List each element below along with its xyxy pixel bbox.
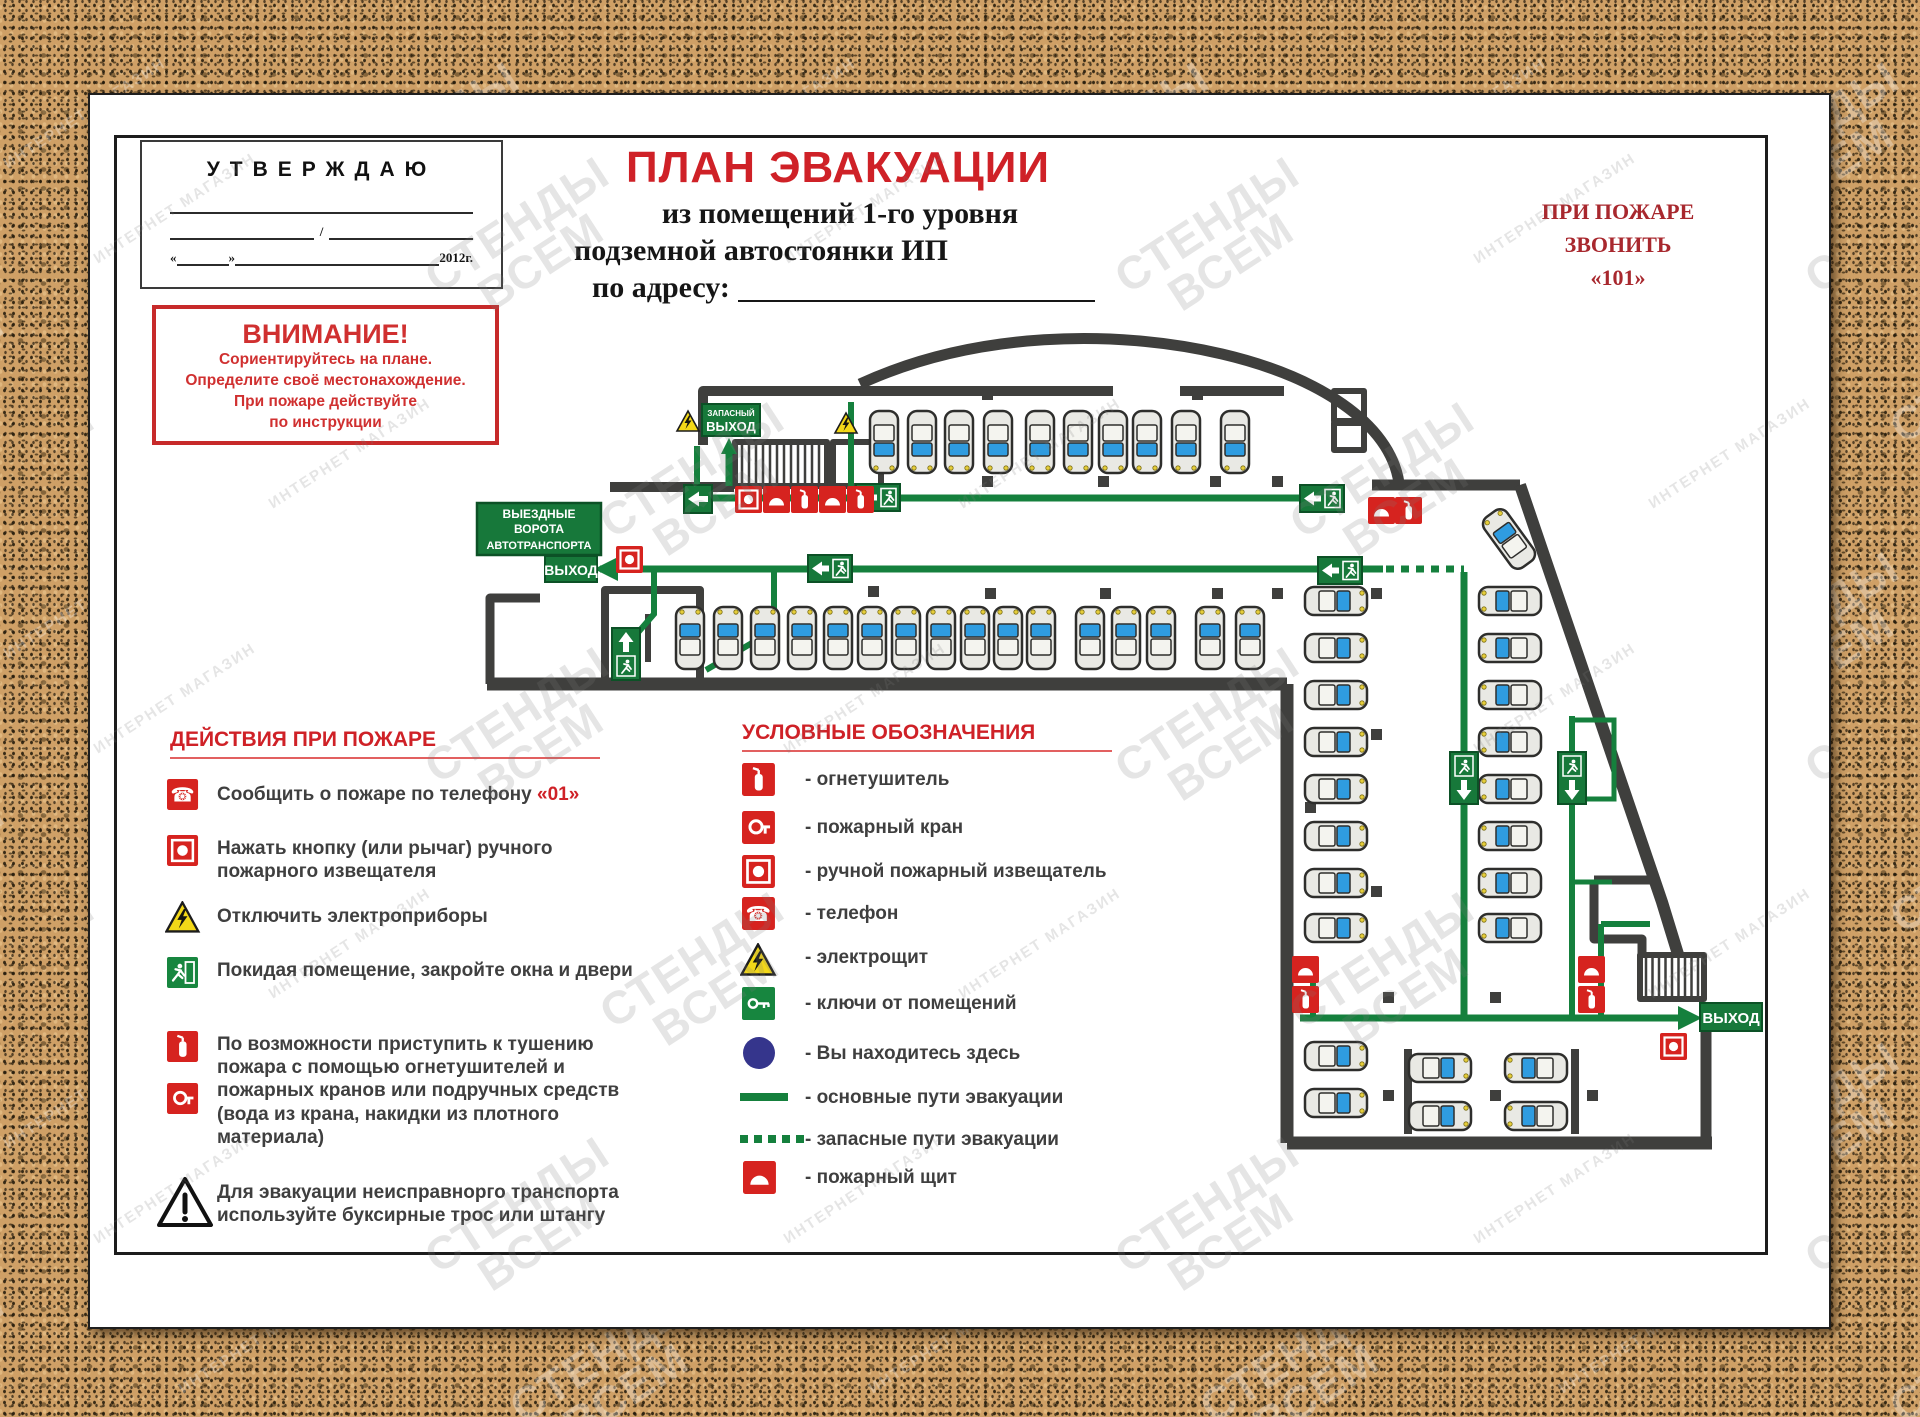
watermark-tile: СТЕНДЫВСЕМ xyxy=(0,1280,35,1417)
attention-line: При пожаре действуйте xyxy=(156,392,495,413)
svg-text:ВОРОТА: ВОРОТА xyxy=(514,522,564,536)
actions-title: ДЕЙСТВИЯ ПРИ ПОЖАРЕ xyxy=(170,728,436,752)
year-label: 2012г. xyxy=(439,250,473,266)
phone-icon xyxy=(167,779,199,811)
exit-sign-right: ВЫХОД xyxy=(1700,1003,1762,1031)
fire-call-line2: ЗВОНИТЬ xyxy=(1498,228,1738,261)
watermark-tile: СТЕНДЫВСЕМ xyxy=(0,790,35,977)
approval-title: УТВЕРЖДАЮ xyxy=(142,158,501,182)
attention-line: Сориентируйтесь на плане. xyxy=(156,350,495,371)
emergency-exit-sign: ЗАПАСНЫЙ ВЫХОД xyxy=(702,404,760,436)
svg-text:ЗАПАСНЫЙ: ЗАПАСНЫЙ xyxy=(707,409,754,418)
slash: / xyxy=(314,224,330,240)
watermark-tile: СТЕНДЫВСЕМ xyxy=(1883,300,1920,487)
attention-box: ВНИМАНИЕ! Сориентируйтесь на плане. Опре… xyxy=(152,305,499,445)
evacuation-plan-page: { "approval": { "title": "УТВЕРЖДАЮ", "s… xyxy=(0,0,1920,1417)
vehicle-gates-sign: ВЫЕЗДНЫЕ ВОРОТА АВТОТРАНСПОРТА xyxy=(477,503,601,555)
attention-line: Определите своё местонахождение. xyxy=(156,371,495,392)
svg-text:ВЫЕЗДНЫЕ: ВЫЕЗДНЫЕ xyxy=(503,507,576,521)
electrical-hazard-icon xyxy=(677,411,699,431)
fire-extinguisher-icon xyxy=(167,1031,199,1063)
parked-cars xyxy=(676,411,1567,1130)
svg-text:ВЫХОД: ВЫХОД xyxy=(706,419,756,434)
watermark-tile: СТЕНДЫВСЕМ xyxy=(1883,1280,1920,1417)
svg-text:ВЫХОД: ВЫХОД xyxy=(544,562,597,578)
svg-text:ВЫХОД: ВЫХОД xyxy=(1702,1010,1760,1027)
electrical-hazard-icon xyxy=(165,901,203,935)
watermark-tile: СТЕНДЫВСЕМ xyxy=(1798,150,1829,337)
watermark-tile: СТЕНДЫВСЕМ xyxy=(0,300,35,487)
signature-line xyxy=(329,220,473,240)
page-title: ПЛАН ЭВАКУАЦИИ xyxy=(553,143,1123,193)
attention-title: ВНИМАНИЕ! xyxy=(156,319,495,350)
signature-line xyxy=(170,220,314,240)
date-line xyxy=(177,246,229,266)
watermark-tile: СТЕНДЫВСЕМ xyxy=(1883,790,1920,977)
date-line xyxy=(235,246,439,266)
signature-line xyxy=(170,194,473,214)
watermark-tile: СТЕНДЫВСЕМ xyxy=(1798,1130,1829,1317)
emergency-exit-icon xyxy=(167,957,199,989)
subtitle-line2: подземной автостоянки ИП xyxy=(574,234,948,268)
approval-box: УТВЕРЖДАЮ / « » 2012г. xyxy=(140,140,503,289)
attention-line: по инструкции xyxy=(156,413,495,434)
exit-sign-left: ВЫХОД xyxy=(544,556,597,582)
subtitle-line1: из помещений 1-го уровня xyxy=(553,197,1127,231)
exit-arrow-sign xyxy=(684,485,712,513)
warning-icon xyxy=(156,1175,214,1229)
manual-call-point-icon xyxy=(167,835,199,867)
fire-hose-icon xyxy=(167,1083,199,1115)
watermark-tile: СТЕНДЫВСЕМ xyxy=(1798,640,1829,827)
evacuation-plan-poster: УТВЕРЖДАЮ / « » 2012г. ПЛАН ЭВАКУАЦИИ из… xyxy=(88,93,1831,1329)
fire-call-line1: ПРИ ПОЖАРЕ xyxy=(1498,195,1738,228)
svg-text:АВТОТРАНСПОРТА: АВТОТРАНСПОРТА xyxy=(486,540,591,552)
floor-plan: ☎ xyxy=(470,277,1780,1262)
